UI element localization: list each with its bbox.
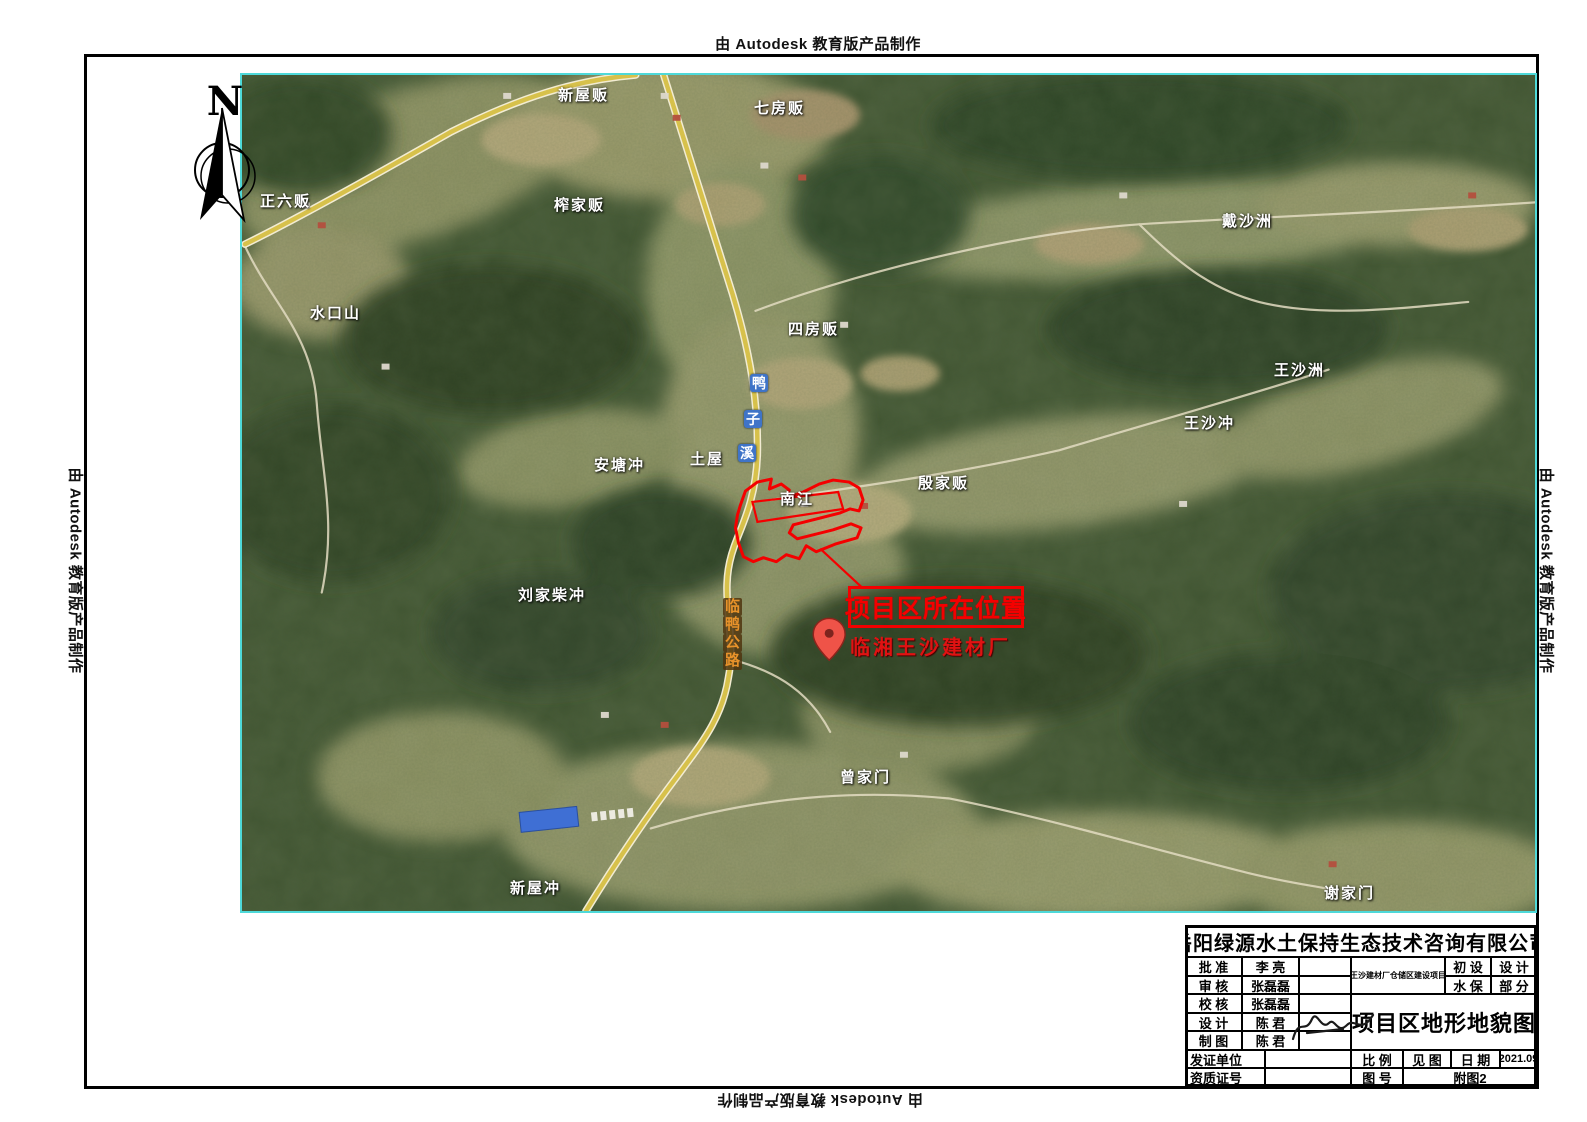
approve-label: 批 准 <box>1185 957 1242 976</box>
road-label-char: 临 <box>723 598 742 616</box>
place-label: 七房贩 <box>754 97 805 118</box>
cert-no-label: 资质证号 <box>1185 1068 1265 1087</box>
stage-cell: 设 计 <box>1491 957 1537 976</box>
review-label: 审 核 <box>1185 976 1242 994</box>
project-location-callout: 项目区所在位置 <box>848 586 1024 628</box>
place-label: 榨家贩 <box>554 194 605 215</box>
approve-name: 李 亮 <box>1242 957 1299 976</box>
place-label: 刘家柴冲 <box>518 584 586 605</box>
place-label: 土屋 <box>690 448 724 469</box>
drawing-title: 项目区地形地貌图 <box>1351 994 1537 1050</box>
draft-name: 陈 君 <box>1242 1031 1299 1050</box>
figure-label: 图 号 <box>1351 1068 1403 1087</box>
place-label: 四房贩 <box>788 318 839 339</box>
review-name: 张磊磊 <box>1242 976 1299 994</box>
check-label: 校 核 <box>1185 994 1242 1013</box>
design-signature-cell <box>1299 1013 1351 1031</box>
cert-no-value <box>1265 1068 1351 1087</box>
check-signature-cell <box>1299 994 1351 1013</box>
place-label: 新屋贩 <box>558 84 609 105</box>
road-label-char: 鸭 <box>723 616 742 634</box>
title-block: 岳阳绿源水土保持生态技术咨询有限公司 批 准 李 亮 审 核 张磊磊 校 核 张… <box>1185 925 1537 1087</box>
autodesk-stamp-bottom: 由 Autodesk 教育版产品制作 <box>690 1090 950 1111</box>
cert-unit-label: 发证单位 <box>1185 1050 1265 1068</box>
cert-unit-value <box>1265 1050 1351 1068</box>
review-signature-cell <box>1299 976 1351 994</box>
design-label: 设 计 <box>1185 1013 1242 1031</box>
place-label: 曾家门 <box>840 766 891 787</box>
approve-signature-cell <box>1299 957 1351 976</box>
place-label: 安塘冲 <box>594 454 645 475</box>
place-label: 南江 <box>780 488 814 509</box>
place-label: 水口山 <box>310 302 361 323</box>
place-label: 王沙洲 <box>1274 359 1325 380</box>
figure-value: 附图2 <box>1403 1068 1537 1087</box>
stage-cell: 部 分 <box>1491 976 1537 994</box>
place-label: 正六贩 <box>260 190 311 211</box>
check-name: 张磊磊 <box>1242 994 1299 1013</box>
road-label-char: 路 <box>723 652 742 670</box>
date-value: 2021.09 <box>1500 1050 1537 1068</box>
date-label: 日 期 <box>1451 1050 1500 1068</box>
satellite-map: 新屋贩 七房贩 正六贩 榨家贩 水口山 四房贩 戴沙洲 王沙洲 王沙冲 安塘冲 … <box>240 73 1537 913</box>
road-label-char: 公 <box>723 634 742 652</box>
stage-cell: 水 保 <box>1445 976 1491 994</box>
stream-label-char: 溪 <box>738 444 756 462</box>
company-name: 岳阳绿源水土保持生态技术咨询有限公司 <box>1185 925 1537 957</box>
draft-label: 制 图 <box>1185 1031 1242 1050</box>
autodesk-stamp-top: 由 Autodesk 教育版产品制作 <box>688 33 948 54</box>
factory-marker-label: 临湘王沙建材厂 <box>850 631 1011 660</box>
draft-signature-cell <box>1299 1031 1351 1050</box>
place-label: 王沙冲 <box>1184 412 1235 433</box>
scale-label: 比 例 <box>1351 1050 1403 1068</box>
place-label: 谢家门 <box>1324 882 1375 903</box>
design-name: 陈 君 <box>1242 1013 1299 1031</box>
stream-label-char: 鸭 <box>750 374 768 392</box>
autodesk-stamp-right: 由 Autodesk 教育版产品制作 <box>1537 441 1558 701</box>
place-label: 殷家贩 <box>918 472 969 493</box>
north-arrow: N <box>185 76 265 236</box>
place-label: 新屋冲 <box>510 877 561 898</box>
place-label: 戴沙洲 <box>1222 210 1273 231</box>
scale-value: 见 图 <box>1403 1050 1451 1068</box>
project-name: 王沙建材厂仓储区建设项目 <box>1351 957 1445 994</box>
stream-label-char: 子 <box>744 410 762 428</box>
cad-sheet: { "stamp": { "text": "由 Autodesk 教育版产品制作… <box>0 0 1587 1122</box>
north-label: N <box>195 78 255 125</box>
stage-cell: 初 设 <box>1445 957 1491 976</box>
